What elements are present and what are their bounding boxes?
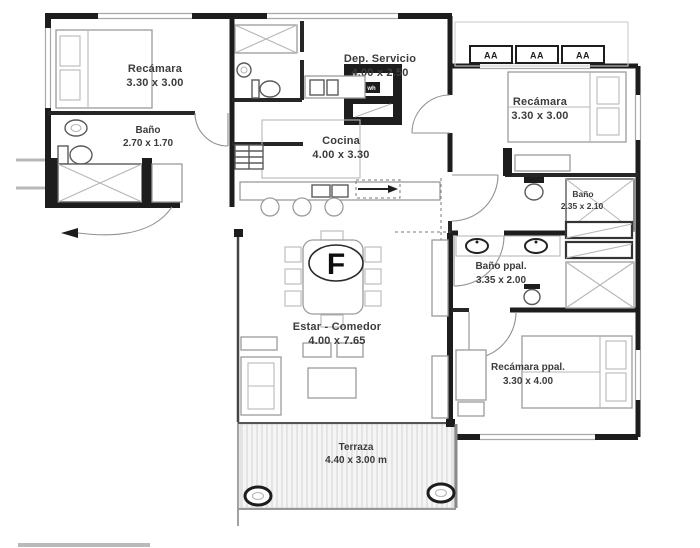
water-heater-label: wh [366,86,376,92]
room-name-label: Baño [572,189,593,199]
stool-icon [293,198,311,216]
room-recamara-ppal: Recámara ppal. 3.30 x 4.00 [456,336,632,416]
bar-counter [240,180,440,200]
coffee-table-icon [308,368,356,398]
wall-pier [142,158,152,204]
toilet-icon [58,146,92,164]
wall-pier [446,419,455,427]
wardrobe-icon [456,350,486,400]
shelf-icon [566,222,632,238]
room-name-label: Estar - Comedor [293,321,382,333]
room-dims-label: 2.35 x 2.10 [561,201,604,211]
closet-icon [235,25,297,53]
window [267,11,398,21]
room-dims-label: 3.30 x 4.00 [503,376,553,387]
room-recamara-tr: Recámara 3.30 x 3.00 [508,72,626,171]
tv-console-icon [432,356,448,418]
column-icon [245,487,271,505]
sofa-icon [241,357,281,415]
terraza: Terraza 4.40 x 3.00 m [238,419,456,509]
room-dims-label: 4.00 x 3.30 [312,149,369,161]
room-name-label: Recámara ppal. [491,362,565,373]
room-name-label: Cocina [322,135,361,147]
stool-icon [261,198,279,216]
closet-column [566,222,634,308]
cabinet-icon [432,240,448,316]
dresser-icon [515,155,570,171]
bench-icon [458,402,484,416]
sink-icon [237,63,251,77]
floor-marker: F [309,245,363,281]
room-name-label: Baño ppal. [475,261,526,272]
floor-plan-drawing: Recámara 3.30 x 3.00 Baño 2.70 x 1.70 [0,0,700,548]
shower-icon [152,164,182,202]
ac-unit-label: AA [576,51,590,61]
ac-units: AA AA AA [455,22,628,66]
ac-unit-label: AA [484,51,498,61]
sink-icon [525,239,547,253]
room-dims-label: 4.40 x 3.00 m [325,455,387,466]
window [633,95,643,140]
room-dims-label: 3.35 x 2.00 [476,275,526,286]
room-dims-label: 3.30 x 3.00 [126,77,183,89]
window [633,350,643,400]
door-swing [452,175,498,221]
ac-unit: AA [516,46,558,63]
ac-unit: AA [470,46,512,63]
closet-icon [566,262,634,308]
room-dims-label: 3.30 x 3.00 [511,110,568,122]
room-name-label: Recámara [513,96,568,108]
toilet-icon [524,177,544,200]
column-icon [428,484,454,502]
bathtub-icon [58,164,142,202]
wall-pier [234,229,243,237]
room-recamara-tl: Recámara 3.30 x 3.00 [56,30,184,108]
sink-icon [466,239,488,253]
toilet-icon [524,284,540,305]
room-name-label: Baño [136,125,161,136]
floor-marker-label: F [327,248,345,281]
room-name-label: Terraza [339,442,374,453]
window [480,432,595,442]
stool-icon [325,198,343,216]
watermark-smudge [18,543,150,547]
door-swing [412,95,450,133]
floor-plan-page: Recámara 3.30 x 3.00 Baño 2.70 x 1.70 [0,0,700,548]
ac-unit: AA [562,46,604,63]
toilet-icon [252,80,280,98]
stove-icon [235,145,263,169]
window [43,28,53,108]
ac-unit-label: AA [530,51,544,61]
room-name-label: Recámara [128,63,183,75]
room-name-label: Dep. Servicio [344,53,416,65]
shelf-icon [566,242,632,258]
room-dims-label: 2.70 x 1.70 [123,138,173,149]
room-bano-tl: Baño 2.70 x 1.70 [58,120,182,204]
door-swing [195,113,228,146]
room-dep-servicio: wh Dep. Servicio 4.00 x 2.50 [235,25,416,125]
sink-icon [65,120,87,136]
kitchen-sink-icon [305,76,365,98]
room-bano-ppal: Baño ppal. 3.35 x 2.00 [456,236,560,305]
window [98,11,192,21]
wall-pier [503,148,512,176]
room-dims-label: 4.00 x 7.65 [308,335,365,347]
console-icon [241,337,277,350]
